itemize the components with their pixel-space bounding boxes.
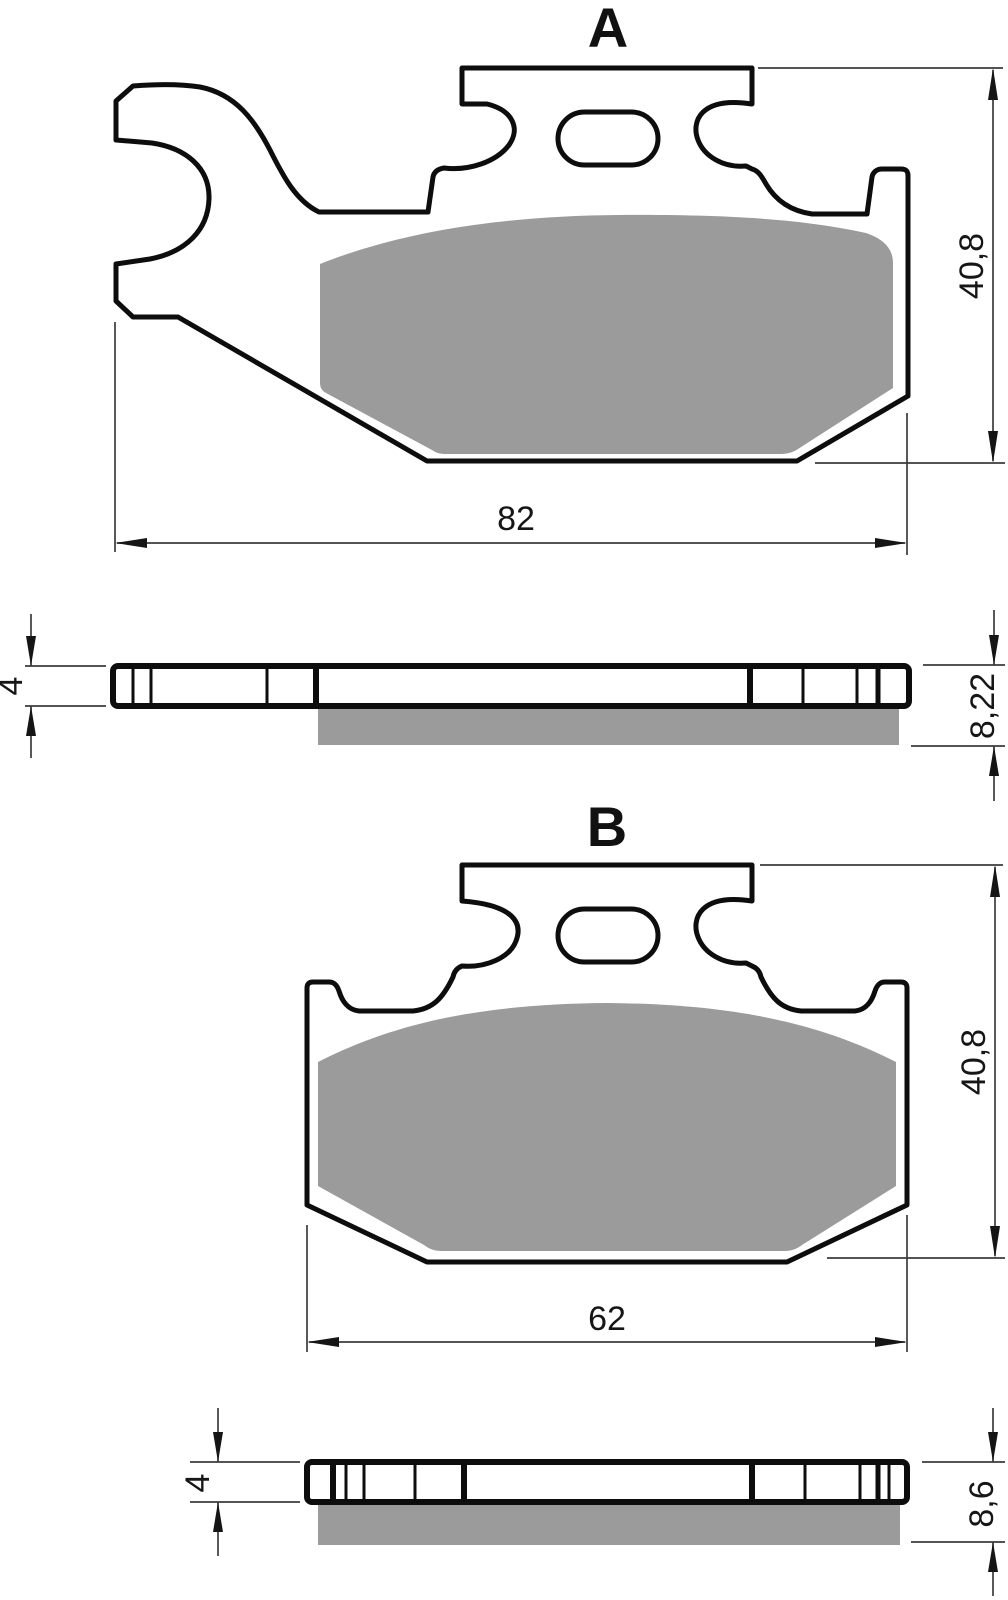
side-a-friction-layer <box>318 704 899 745</box>
arrow-up <box>988 68 998 100</box>
arrow-right <box>875 1337 907 1347</box>
arrow-up <box>988 1542 998 1572</box>
dim-a-plate-thickness-value: 4 <box>0 677 30 696</box>
side-a-backing-plate <box>113 666 909 706</box>
view-a: A 40,8 82 <box>115 0 1005 555</box>
brake-pad-drawing: A 40,8 82 <box>0 0 1008 1600</box>
arrow-left <box>307 1337 339 1347</box>
arrow-down <box>990 1226 1000 1258</box>
technical-drawing-page: A 40,8 82 <box>0 0 1008 1600</box>
arrow-left <box>115 538 147 548</box>
arrow-up <box>989 746 999 776</box>
dim-b-height-value: 40,8 <box>955 1029 993 1095</box>
arrow-down <box>26 636 36 666</box>
dim-b-total-thickness-value: 8,6 <box>963 1480 1001 1527</box>
arrow-right <box>875 538 907 548</box>
side-a-plate-thickness-dimension: 4 <box>0 614 106 758</box>
side-b-plate-thickness-dimension: 4 <box>179 1408 300 1556</box>
pad-a-friction-material <box>320 215 893 454</box>
dim-a-width-value: 82 <box>497 500 535 538</box>
dim-a-total-thickness-value: 8,22 <box>964 673 1002 739</box>
dim-b-plate-thickness-value: 4 <box>179 1474 217 1493</box>
view-b: B 40,8 62 <box>307 795 1005 1352</box>
arrow-down <box>988 431 998 463</box>
side-view-b: 4 8,6 <box>179 1408 1005 1596</box>
side-b-backing-plate <box>307 1462 907 1502</box>
arrow-down <box>213 1432 223 1462</box>
dim-a-height-value: 40,8 <box>953 233 991 299</box>
pad-a-slot <box>558 112 658 165</box>
pad-b-friction-material <box>318 1003 896 1251</box>
view-b-label: B <box>587 795 627 858</box>
arrow-up <box>213 1502 223 1532</box>
arrow-up <box>990 865 1000 897</box>
arrow-down <box>989 635 999 665</box>
view-a-label: A <box>588 0 628 59</box>
side-view-a: 4 8,22 <box>0 610 1005 801</box>
arrow-down <box>988 1432 998 1462</box>
side-b-friction-layer <box>318 1500 900 1545</box>
side-b-total-thickness-dimension: 8,6 <box>911 1408 1005 1596</box>
pad-b-slot <box>558 909 658 962</box>
side-a-total-thickness-dimension: 8,22 <box>911 610 1005 801</box>
dim-b-width-value: 62 <box>588 1300 626 1338</box>
arrow-up <box>26 706 36 736</box>
